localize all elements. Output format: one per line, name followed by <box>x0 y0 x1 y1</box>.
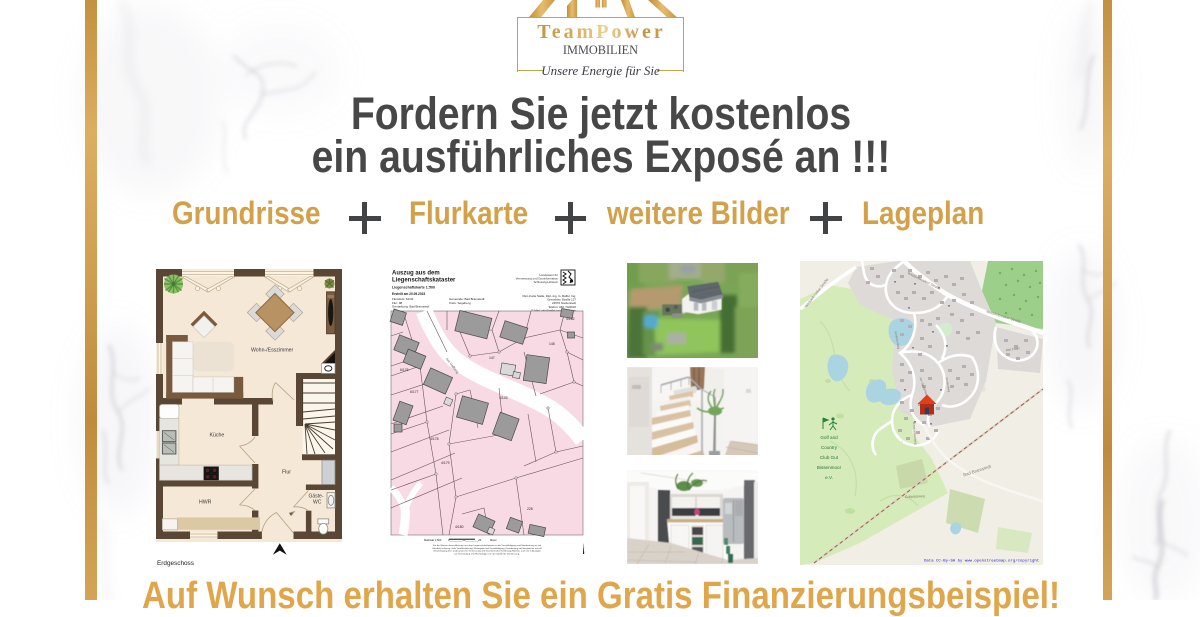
svg-text:Flur: Flur <box>282 470 291 476</box>
svg-text:Erdgeschoss: Erdgeschoss <box>157 560 194 567</box>
svg-text:HWR: HWR <box>199 500 212 506</box>
svg-text:Erlaubnis zulässig. Jede Veröf: Erlaubnis zulässig. Jede Veröffentlichun… <box>432 547 542 550</box>
svg-text:4/180: 4/180 <box>455 525 464 529</box>
svg-text:Liegenschaftskarte 1:500: Liegenschaftskarte 1:500 <box>392 286 435 290</box>
svg-text:4/179: 4/179 <box>441 461 450 465</box>
svg-text:Genehmigung des Landesamtes fü: Genehmigung des Landesamtes für Vermessu… <box>433 550 541 553</box>
svg-text:Erstellt am 20.09.2023: Erstellt am 20.09.2023 <box>392 292 425 296</box>
svg-text:4/143: 4/143 <box>499 396 508 400</box>
svg-text:Kreis: Segeberg: Kreis: Segeberg <box>449 301 471 305</box>
svg-text:Gemarkung: Bad Bramstedt: Gemarkung: Bad Bramstedt <box>392 305 429 309</box>
svg-text:Schleswig-Holstein: Schleswig-Holstein <box>534 280 559 284</box>
svg-text:zur Verwendung. Die Rechtsfolg: zur Verwendung. Die Rechtsfolge ist in d… <box>454 552 520 555</box>
svg-text:148: 148 <box>549 342 555 346</box>
svg-text:6/176: 6/176 <box>400 368 409 372</box>
svg-text:Auszug aus dem: Auszug aus dem <box>392 271 440 277</box>
svg-text:4/178: 4/178 <box>430 437 439 441</box>
svg-text:Bissenmoor: Bissenmoor <box>817 465 842 470</box>
svg-text:Club Gut: Club Gut <box>820 455 839 460</box>
svg-text:Golf and: Golf and <box>820 435 838 440</box>
svg-text:Country: Country <box>821 445 838 450</box>
svg-text:Für die Weitere dieses Auszugs: Für die Weitere dieses Auszugs aus dem L… <box>433 544 541 547</box>
svg-text:Liegenschaftskataster: Liegenschaftskataster <box>392 278 456 284</box>
svg-text:e.V.: e.V. <box>825 475 833 480</box>
svg-text:WC: WC <box>313 500 322 506</box>
svg-text:228: 228 <box>527 507 533 511</box>
svg-text:Wohn-/Esszimmer: Wohn-/Esszimmer <box>251 348 294 354</box>
svg-text:Data CC-By-SA by www.openstree: Data CC-By-SA by www.openstreetmap.org/c… <box>924 559 1039 564</box>
svg-text:6/177: 6/177 <box>410 390 419 394</box>
svg-text:Küche: Küche <box>210 432 225 438</box>
svg-text:4/162: 4/162 <box>566 317 575 321</box>
svg-text:147: 147 <box>489 356 495 360</box>
svg-text:Maßstab 1:500: Maßstab 1:500 <box>424 538 442 542</box>
svg-text:Meter: Meter <box>490 538 497 542</box>
